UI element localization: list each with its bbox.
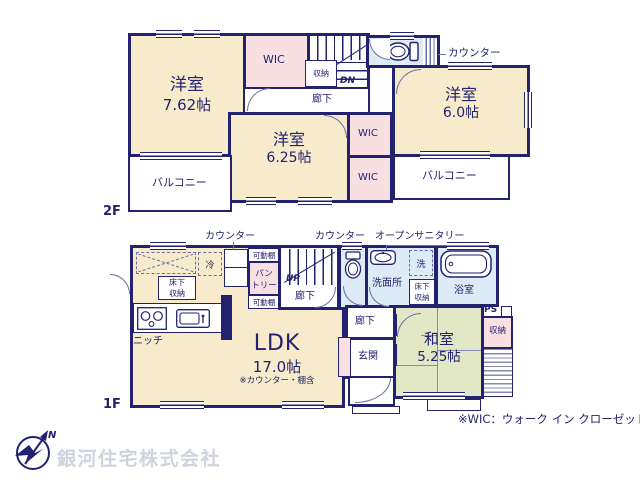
floor1-label: 1F <box>103 397 121 412</box>
deck <box>482 348 513 397</box>
bathroom-label: 浴室 <box>454 285 474 296</box>
hallway1-label: 廊下 <box>295 291 315 302</box>
window <box>298 197 332 205</box>
vanity-sink-icon <box>370 250 396 265</box>
washer-label: 洗 <box>416 257 425 270</box>
wic-note: ※WIC：ウォーク イン クローゼット <box>458 413 640 426</box>
up-label: UP <box>286 275 300 285</box>
movable-shelf-1: 可動棚 <box>248 248 280 262</box>
bathtub-icon <box>440 250 492 278</box>
window <box>194 30 220 38</box>
underfloor2-l1: 床下 <box>415 281 430 292</box>
shelf2-label: 可動棚 <box>253 297 276 308</box>
window <box>524 92 532 128</box>
counter1-label: カウンター <box>205 231 255 242</box>
window <box>246 197 276 205</box>
porch-step <box>352 406 400 414</box>
window <box>390 32 414 40</box>
closet-2f-stairs: 収納 <box>305 60 337 87</box>
balcony-left-label: バルコニー <box>152 177 207 189</box>
toilet-1f-icon <box>344 251 362 280</box>
open-sanitary-tick <box>386 245 387 250</box>
floor2-label: 2F <box>103 204 121 219</box>
cabinet-divider <box>225 267 247 268</box>
underfloor1-l2: 収納 <box>169 288 185 299</box>
window <box>160 401 204 409</box>
open-sanitary-label: オープンサニタリー <box>375 231 464 242</box>
pantry-l2: トリー <box>251 279 277 291</box>
hallway-2f-label: 廊下 <box>312 94 332 105</box>
toilet-2f-icon <box>385 41 419 62</box>
balcony-right-label: バルコニー <box>422 170 477 182</box>
closet-2f-label: 収納 <box>313 68 329 79</box>
window <box>448 62 492 70</box>
hanging-cabinet-x-icon <box>138 254 194 272</box>
underfloor-storage-kitchen: 床下収納 <box>158 276 196 300</box>
window <box>447 242 489 250</box>
window <box>282 401 324 409</box>
compass-icon: N <box>12 426 60 476</box>
fridge: 冷 <box>198 252 222 276</box>
floorplan: 収納 DN 廊下 カウンター バルコニー バルコニー 洋室 7.62帖 洋室 6… <box>0 0 640 480</box>
side-door-swing <box>110 274 130 294</box>
pantry: パントリー <box>248 261 280 296</box>
wic2-label: WIC <box>358 172 378 183</box>
window <box>420 151 490 159</box>
compass-n-label: N <box>48 430 57 441</box>
counter-2f-pointer <box>438 54 446 55</box>
pantry-l1: パン <box>251 267 277 279</box>
window <box>140 152 222 160</box>
underfloor1-l1: 床下 <box>169 277 185 288</box>
room-762-label: 洋室 7.62帖 <box>133 75 241 115</box>
counter1-pointer <box>233 242 234 250</box>
shelf1-label: 可動棚 <box>253 250 276 261</box>
hanging-cabinet <box>136 252 196 274</box>
ldk-label: LDK 17.0帖 ※カウンター・棚含 <box>212 330 342 387</box>
dn-label: DN <box>340 77 355 87</box>
movable-shelf-2: 可動棚 <box>248 295 280 309</box>
underfloor2-l2: 収納 <box>415 292 430 303</box>
ps-label: PS <box>484 306 497 316</box>
washer: 洗 <box>409 250 433 276</box>
niche-label: ニッチ <box>133 336 163 347</box>
counter-2f-label: カウンター <box>448 48 501 60</box>
window <box>156 30 182 38</box>
company-name: 銀河住宅株式会社 <box>57 449 221 470</box>
underfloor-storage-wash: 床下収納 <box>409 279 435 305</box>
fridge-label: 冷 <box>205 258 214 271</box>
window <box>403 392 465 400</box>
wic1-label: WIC <box>358 128 378 139</box>
stove-icon <box>137 307 167 330</box>
wic-top-label: WIC <box>263 54 285 66</box>
kitchen-sink-icon <box>176 309 210 328</box>
entrance-label: 玄関 <box>358 351 378 362</box>
hallway2-label: 廊下 <box>355 316 375 327</box>
counter2-label: カウンター <box>315 231 365 242</box>
window <box>150 242 186 250</box>
counter-2f-hatch <box>423 38 437 65</box>
washitsu-step <box>427 399 481 411</box>
closet-1f-label: 収納 <box>489 327 506 336</box>
window <box>342 242 362 250</box>
